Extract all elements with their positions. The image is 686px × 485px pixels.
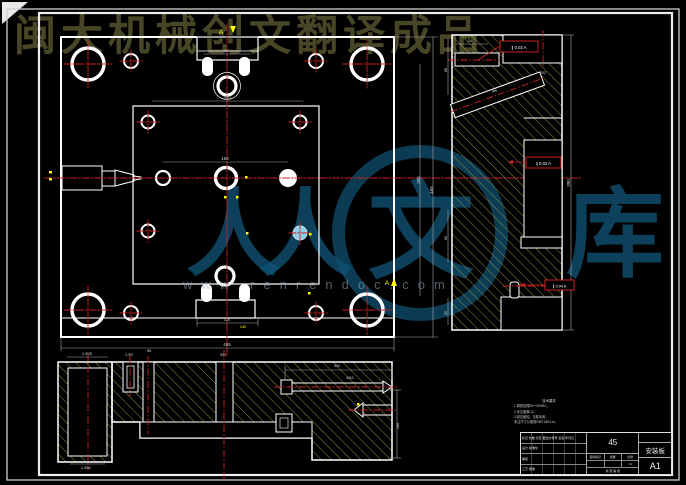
svg-text:465: 465 <box>429 186 434 194</box>
svg-text:90: 90 <box>225 49 229 53</box>
scale-value: 1:1 <box>622 461 638 467</box>
svg-text:180: 180 <box>396 423 400 429</box>
stage-mark-label: 阶段标记 <box>587 454 604 460</box>
revision-row: 设计 标准化 <box>521 444 586 455</box>
material-label: 45 <box>587 433 638 454</box>
svg-text:2-Φ9: 2-Φ9 <box>125 353 133 357</box>
tech-note-line: 未注尺寸公差按GB/T1804-m。 <box>514 420 584 425</box>
revision-row: 标记 处数 分区 更改文件号 签名 年月日 <box>521 433 586 444</box>
sheet-count: 共 张 第 张 <box>587 468 638 474</box>
svg-text:Φ11: Φ11 <box>220 353 227 357</box>
svg-text:140: 140 <box>240 325 246 329</box>
svg-text:∥ 0.02 A: ∥ 0.02 A <box>511 45 526 50</box>
name-zone-strip <box>639 433 671 443</box>
svg-text:465: 465 <box>223 342 231 347</box>
scale-label: 比例 <box>622 454 638 460</box>
svg-text:20: 20 <box>444 311 448 315</box>
revision-row: 审核 <box>521 454 586 465</box>
sheet-code: A1 <box>639 458 671 474</box>
revision-row: 工艺 批准 <box>521 465 586 475</box>
bottom-section-view <box>58 350 401 479</box>
svg-text:50: 50 <box>444 236 448 240</box>
part-name: 安装板 <box>639 443 671 458</box>
cad-sheet-preview: 闽大机械创文翻译成品 人 人 文 库 <box>0 0 686 485</box>
svg-text:24: 24 <box>468 39 472 43</box>
svg-text:∥ 0.02 A: ∥ 0.02 A <box>536 161 551 166</box>
svg-text:A: A <box>219 29 224 36</box>
mass-label: 质量 <box>605 454 622 460</box>
svg-text:355: 355 <box>416 176 421 184</box>
svg-text:M16: M16 <box>347 376 354 380</box>
title-block: 标记 处数 分区 更改文件号 签名 年月日 设计 标准化 审核 工艺 批准 45… <box>520 432 672 475</box>
svg-text:∥ 0.04 A: ∥ 0.04 A <box>553 284 567 289</box>
svg-text:150: 150 <box>221 156 229 161</box>
top-boss <box>197 37 258 100</box>
stage-mark-value <box>587 461 604 467</box>
svg-text:120: 120 <box>224 318 230 322</box>
url-watermark: www.renrendoc.com <box>183 277 454 292</box>
bottom-boss <box>196 267 255 318</box>
svg-text:390: 390 <box>566 179 571 187</box>
svg-text:240: 240 <box>223 95 231 100</box>
title-block-material-zone: 45 阶段标记 质量 比例 1:1 共 张 第 张 <box>587 433 639 474</box>
svg-text:202: 202 <box>540 71 546 75</box>
title-block-name-zone: 安装板 A1 <box>639 433 671 474</box>
svg-text:1-Φ52: 1-Φ52 <box>81 466 91 470</box>
svg-text:Φ6: Φ6 <box>147 349 152 353</box>
tech-notes: 技术要求 1.调质处理28～32HRC。 2.未注倒角C2。 3.锐边倒钝，去除… <box>514 399 584 425</box>
snap-marker <box>357 403 360 406</box>
svg-text:302: 302 <box>334 364 340 368</box>
mass-value <box>605 461 622 467</box>
title-block-revision-grid: 标记 处数 分区 更改文件号 签名 年月日 设计 标准化 审核 工艺 批准 <box>521 433 587 474</box>
svg-text:85: 85 <box>444 68 448 72</box>
svg-text:1-Φ35: 1-Φ35 <box>82 352 92 356</box>
right-section-view: ∥ 0.02 A ∥ 0.02 A ∥ 0.04 A <box>448 30 574 330</box>
